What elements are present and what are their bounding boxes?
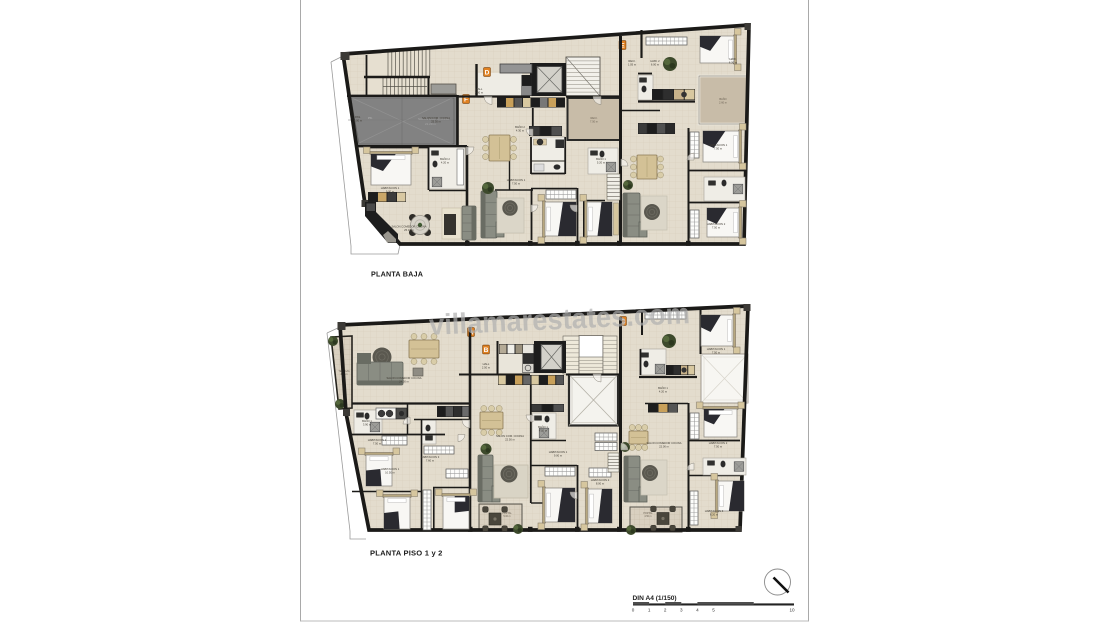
svg-text:DIN A4 (1/150): DIN A4 (1/150) <box>633 595 677 602</box>
svg-text:10.50 m: 10.50 m <box>385 471 395 475</box>
svg-text:3: 3 <box>680 608 683 613</box>
svg-text:1.05 m: 1.05 m <box>628 63 637 67</box>
svg-text:4.30 m: 4.30 m <box>516 129 525 133</box>
svg-text:HABITACION 1: HABITACION 1 <box>381 186 400 190</box>
svg-text:HABI. 2: HABI. 2 <box>650 59 660 63</box>
svg-text:8.00 m: 8.00 m <box>596 482 605 486</box>
svg-text:0: 0 <box>632 608 635 613</box>
svg-text:9.00 m: 9.00 m <box>386 190 395 194</box>
svg-text:7.50 m: 7.50 m <box>714 147 723 151</box>
svg-text:HABITACION 3: HABITACION 3 <box>705 509 724 513</box>
svg-text:7.60 m: 7.60 m <box>426 459 435 463</box>
svg-text:2.50 m: 2.50 m <box>475 91 484 95</box>
svg-text:22.50 m: 22.50 m <box>505 438 515 442</box>
svg-text:PK.: PK. <box>368 116 373 120</box>
svg-text:6.00 m: 6.00 m <box>651 63 660 67</box>
svg-text:4.20 m: 4.20 m <box>659 390 668 394</box>
svg-text:HALL: HALL <box>476 87 483 91</box>
svg-text:2.50 m: 2.50 m <box>482 366 491 370</box>
svg-text:4.20 m: 4.20 m <box>441 161 450 165</box>
svg-text:5: 5 <box>712 608 715 613</box>
svg-text:9.00 m: 9.00 m <box>554 454 563 458</box>
svg-text:HABITACION 2: HABITACION 2 <box>709 441 728 445</box>
svg-text:SALON COMEDOR COCINA: SALON COMEDOR COCINA <box>391 225 426 229</box>
svg-text:10: 10 <box>789 608 795 613</box>
svg-text:HABITACION 3: HABITACION 3 <box>421 455 440 459</box>
svg-text:7.50 m: 7.50 m <box>373 442 382 446</box>
svg-text:PLANTA PISO 1 y 2: PLANTA PISO 1 y 2 <box>370 549 443 558</box>
svg-text:B: B <box>484 347 489 354</box>
svg-text:HABITACION 2: HABITACION 2 <box>368 438 387 442</box>
svg-text:D: D <box>485 70 490 77</box>
svg-text:SALON COM. COCINA: SALON COM. COCINA <box>496 434 524 438</box>
svg-text:HABITACION 1: HABITACION 1 <box>549 450 568 454</box>
svg-text:RECI.: RECI. <box>591 116 598 120</box>
svg-text:F: F <box>464 97 468 104</box>
svg-text:SALON COMEDOR COCINA: SALON COMEDOR COCINA <box>646 441 681 445</box>
svg-text:HABITACION 1: HABITACION 1 <box>381 467 400 471</box>
svg-text:5.20 m: 5.20 m <box>597 161 606 165</box>
svg-text:HABITACION 1: HABITACION 1 <box>709 143 728 147</box>
svg-text:7.50 m: 7.50 m <box>512 182 521 186</box>
svg-text:25.30 m: 25.30 m <box>431 120 441 124</box>
svg-text:5.00 m: 5.00 m <box>503 515 510 518</box>
svg-text:6.20 m: 6.20 m <box>710 513 719 517</box>
svg-text:PLANTA BAJA: PLANTA BAJA <box>371 270 423 279</box>
svg-text:4.00 m: 4.00 m <box>354 119 363 123</box>
svg-text:SALON/COM. COCINA: SALON/COM. COCINA <box>422 116 450 120</box>
svg-text:4: 4 <box>696 608 699 613</box>
svg-text:7.50 m: 7.50 m <box>712 351 721 355</box>
svg-text:7.50 m: 7.50 m <box>712 226 721 230</box>
svg-text:3.90 m: 3.90 m <box>363 423 372 427</box>
svg-text:HALL: HALL <box>483 362 490 366</box>
svg-text:HABI.: HABI. <box>729 57 736 61</box>
svg-text:1: 1 <box>648 608 651 613</box>
svg-text:HABITACION 2: HABITACION 2 <box>707 222 726 226</box>
svg-text:24.50 m: 24.50 m <box>399 380 409 384</box>
svg-text:4.20 m: 4.20 m <box>539 429 548 433</box>
svg-text:PAS.: PAS. <box>355 115 361 119</box>
svg-text:25.10 m: 25.10 m <box>404 228 414 232</box>
svg-text:RECI.: RECI. <box>628 59 635 63</box>
svg-text:HABITACION 1: HABITACION 1 <box>507 178 526 182</box>
svg-text:22.00 m: 22.00 m <box>659 445 669 449</box>
svg-text:6.20 m: 6.20 m <box>729 61 738 65</box>
svg-text:2: 2 <box>664 608 667 613</box>
svg-text:2.60 m: 2.60 m <box>719 100 727 104</box>
svg-text:HABITACION 1: HABITACION 1 <box>707 347 726 351</box>
svg-text:SALON COMEDOR COCINA: SALON COMEDOR COCINA <box>386 376 421 380</box>
svg-text:4.50 m: 4.50 m <box>644 515 651 518</box>
svg-text:7.50 m: 7.50 m <box>714 445 723 449</box>
svg-text:7.50 m: 7.50 m <box>590 119 598 123</box>
svg-text:HABITACION 2: HABITACION 2 <box>591 478 610 482</box>
